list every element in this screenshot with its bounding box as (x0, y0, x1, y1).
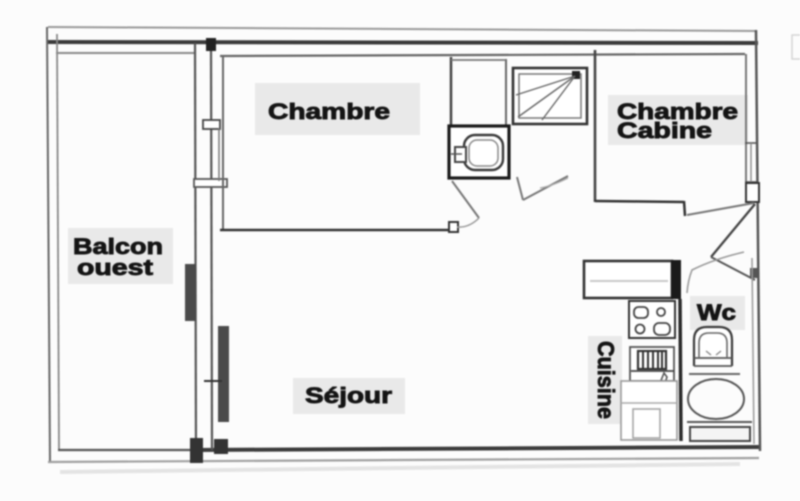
svg-text:Cabine: Cabine (617, 118, 712, 143)
svg-text:Chambre: Chambre (268, 99, 390, 124)
svg-text:Wc: Wc (697, 300, 736, 325)
svg-text:Cuisine: Cuisine (593, 341, 619, 419)
svg-text:Séjour: Séjour (305, 383, 393, 408)
svg-text:ouest: ouest (77, 255, 154, 280)
